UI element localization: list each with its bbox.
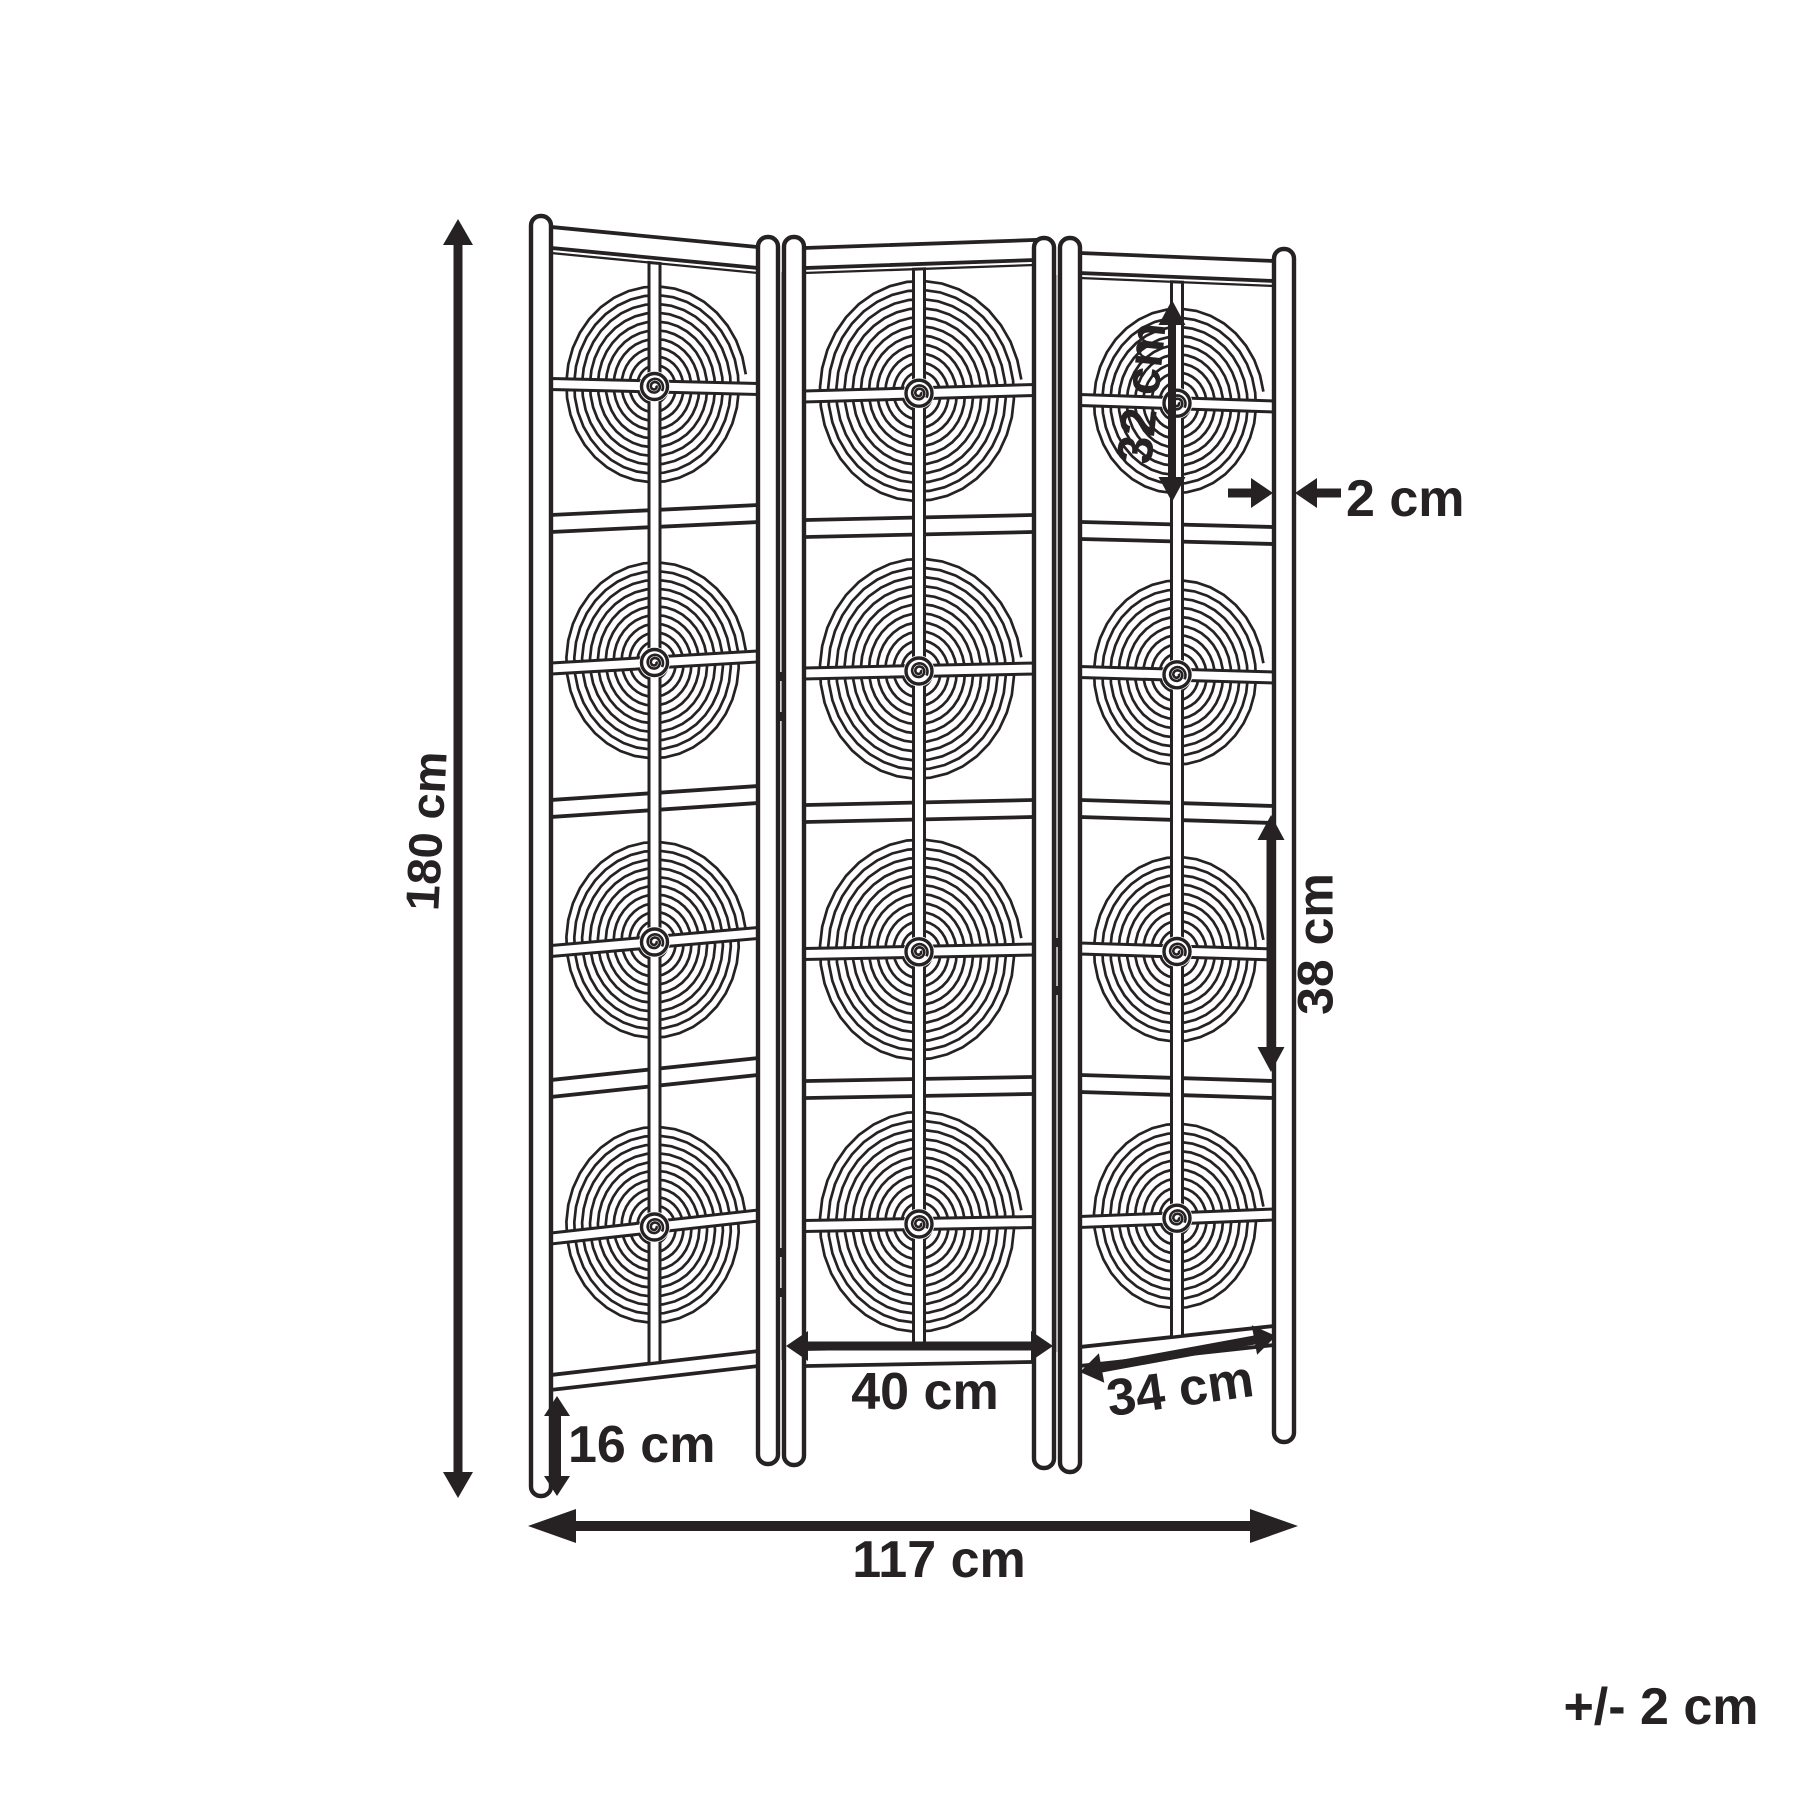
svg-text:38 cm: 38 cm — [1288, 873, 1344, 1015]
svg-text:40 cm: 40 cm — [851, 1363, 998, 1421]
svg-text:180 cm: 180 cm — [395, 750, 456, 912]
svg-text:16 cm: 16 cm — [568, 1416, 715, 1474]
svg-text:117 cm: 117 cm — [852, 1531, 1026, 1589]
svg-text:+/- 2 cm: +/- 2 cm — [1563, 1678, 1758, 1736]
svg-text:2 cm: 2 cm — [1346, 470, 1465, 528]
